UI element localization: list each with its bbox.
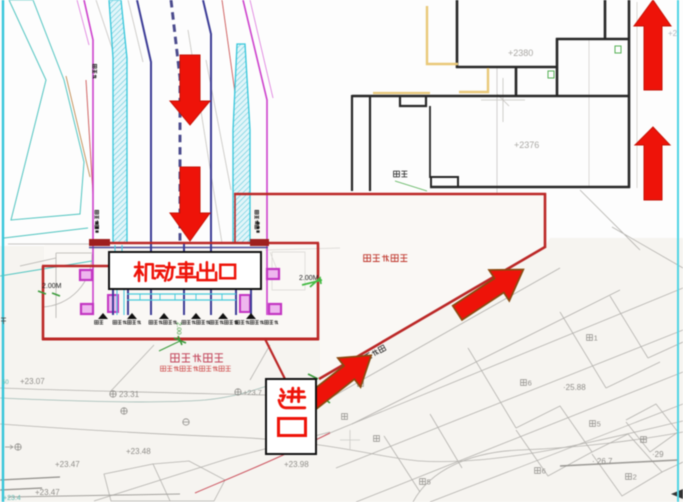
svg-text:6: 6	[528, 379, 532, 388]
svg-text:1: 1	[594, 334, 598, 343]
svg-text:+23.7: +23.7	[243, 388, 262, 397]
svg-text:50: 50	[2, 380, 9, 386]
svg-text:+2376: +2376	[514, 140, 539, 150]
svg-text:2.00: 2.00	[175, 322, 182, 335]
svg-text:+2380: +2380	[508, 48, 533, 58]
svg-text:·25.88: ·25.88	[563, 383, 586, 392]
svg-text:2.00M: 2.00M	[42, 283, 62, 290]
svg-text:+23.98: +23.98	[284, 460, 309, 469]
svg-text:+23.4: +23.4	[3, 495, 21, 502]
svg-text:·29: ·29	[652, 450, 664, 459]
svg-text:+23.47: +23.47	[35, 488, 60, 497]
svg-text:+23.47: +23.47	[55, 460, 80, 469]
svg-text:+23.48: +23.48	[126, 447, 151, 456]
svg-text:+23.07: +23.07	[20, 377, 45, 386]
svg-text:· 26.7: · 26.7	[592, 457, 613, 466]
svg-text:+2: +2	[668, 29, 678, 38]
svg-text:23.31: 23.31	[119, 390, 140, 399]
svg-text:5: 5	[597, 420, 601, 429]
svg-text:5: 5	[427, 478, 431, 487]
svg-text:2: 2	[633, 473, 637, 482]
svg-text:6: 6	[542, 467, 546, 476]
